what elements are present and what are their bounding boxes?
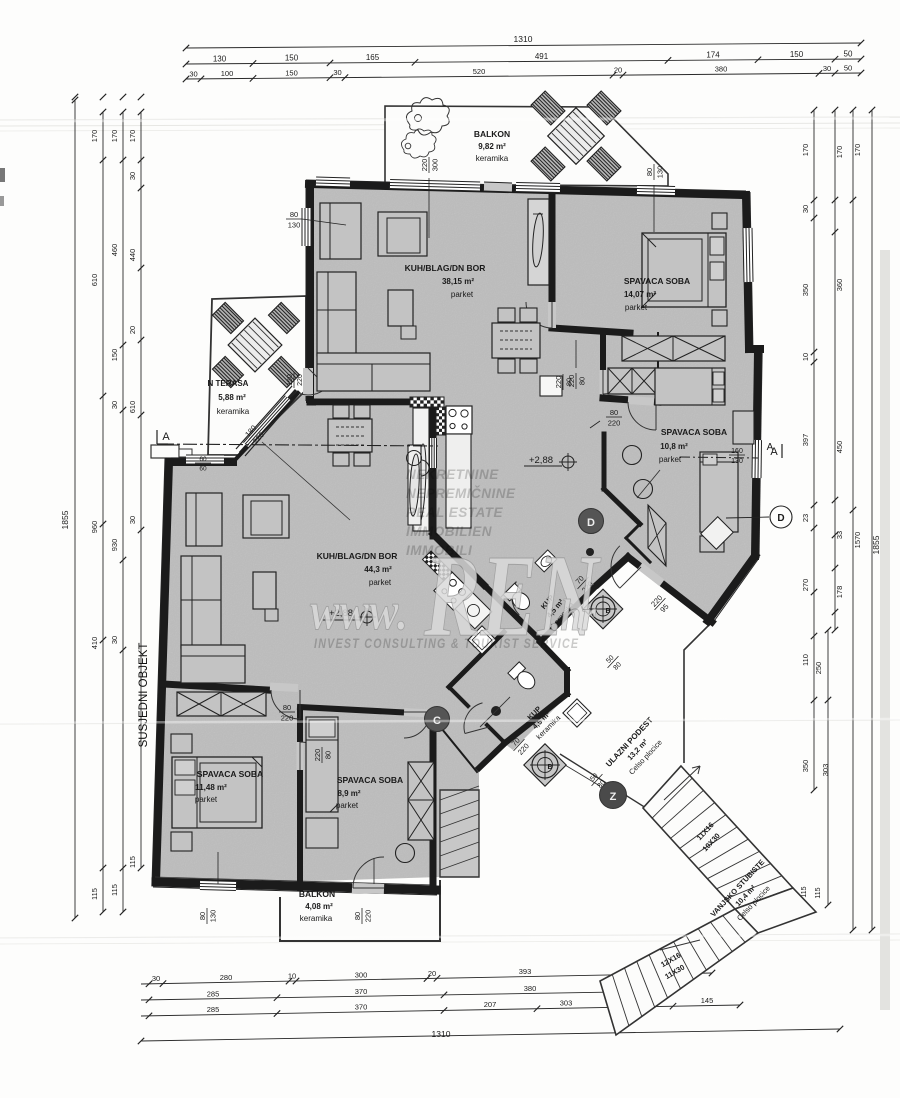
svg-text:+2,88: +2,88 [529,455,553,466]
svg-text:285: 285 [207,1005,220,1014]
svg-text:300: 300 [431,159,440,172]
svg-text:174: 174 [706,51,720,60]
svg-text:SUSJEDNI OBJEKT: SUSJEDNI OBJEKT [138,643,150,748]
svg-text:60: 60 [199,456,207,463]
svg-text:460: 460 [110,244,119,257]
svg-text:220: 220 [313,749,322,762]
svg-text:150: 150 [110,349,119,362]
svg-text:parket: parket [659,455,682,464]
svg-text:170: 170 [128,130,137,143]
svg-text:110: 110 [801,654,810,666]
svg-text:250: 250 [814,662,823,675]
svg-text:8,9 m²: 8,9 m² [337,789,360,798]
svg-text:303: 303 [821,764,830,777]
svg-text:REAL ESTATE: REAL ESTATE [406,505,504,520]
svg-text:KUH/BLAG/DN BOR: KUH/BLAG/DN BOR [405,263,486,273]
svg-text:SPAVACA SOBA: SPAVACA SOBA [624,276,690,286]
svg-text:keramika: keramika [217,407,250,416]
svg-text:20: 20 [614,66,622,75]
svg-text:220: 220 [364,910,373,923]
svg-text:KUH/BLAG/DN BOR: KUH/BLAG/DN BOR [317,551,398,561]
svg-text:130: 130 [656,166,665,179]
svg-text:150: 150 [285,69,298,78]
svg-text:5,88 m²: 5,88 m² [218,393,246,402]
svg-text:1855: 1855 [871,535,881,554]
svg-text:220: 220 [420,159,429,172]
svg-text:80: 80 [353,912,362,920]
svg-text:30: 30 [333,68,341,77]
svg-text:10,8 m²: 10,8 m² [660,442,688,451]
svg-text:440: 440 [128,249,137,262]
svg-text:1570: 1570 [853,532,862,549]
svg-text:115: 115 [90,888,99,900]
svg-text:80: 80 [565,378,574,386]
svg-text:165: 165 [366,53,380,62]
svg-text:115: 115 [815,887,822,898]
svg-text:350: 350 [801,284,810,297]
svg-text:20: 20 [128,326,137,334]
svg-text:115: 115 [801,886,808,897]
svg-text:380: 380 [715,65,728,74]
svg-text:150: 150 [790,50,804,59]
svg-text:BALKON: BALKON [299,889,335,899]
svg-text:30: 30 [823,64,831,73]
svg-text:10: 10 [801,353,810,361]
svg-text:178: 178 [835,586,844,599]
svg-text:60: 60 [199,466,207,473]
svg-text:11,48 m²: 11,48 m² [195,783,227,792]
svg-text:parket: parket [195,795,218,804]
svg-text:B: B [605,608,610,615]
svg-text:115: 115 [110,884,119,896]
svg-text:30: 30 [110,401,119,409]
svg-text:280: 280 [220,973,233,982]
svg-text:300: 300 [355,970,368,979]
svg-text:491: 491 [535,52,549,61]
svg-text:80: 80 [290,210,298,219]
svg-text:170: 170 [110,130,119,143]
svg-text:44,3 m²: 44,3 m² [364,565,392,574]
svg-text:parket: parket [336,801,359,810]
svg-text:30: 30 [189,69,197,78]
svg-text:285: 285 [207,989,220,998]
svg-text:150: 150 [287,374,294,386]
svg-text:303: 303 [560,999,573,1008]
svg-text:30: 30 [128,516,137,524]
svg-text:50: 50 [844,50,853,59]
svg-text:30: 30 [128,172,137,180]
svg-text:410: 410 [90,637,99,650]
svg-text:A: A [162,431,170,443]
svg-text:BALKON: BALKON [474,129,510,139]
svg-text:220: 220 [297,374,304,386]
svg-text:keramika: keramika [300,914,333,923]
svg-text:393: 393 [519,967,532,976]
svg-text:930: 930 [110,539,119,552]
svg-text:1310: 1310 [432,1029,451,1039]
svg-text:160: 160 [731,448,743,455]
svg-text:80: 80 [610,408,618,417]
svg-text:80: 80 [198,912,207,920]
svg-text:50: 50 [844,64,852,73]
svg-text:N TERASA: N TERASA [208,379,249,388]
svg-text:20: 20 [428,969,436,978]
svg-text:370: 370 [355,987,368,996]
svg-text:397: 397 [801,434,810,447]
svg-text:610: 610 [90,274,99,287]
svg-text:9,82 m²: 9,82 m² [478,142,506,151]
svg-text:220: 220 [554,376,563,389]
svg-text:NEKRETNINE: NEKRETNINE [406,467,499,482]
svg-text:Z: Z [610,791,617,803]
svg-text:130: 130 [213,54,227,63]
svg-text:1310: 1310 [514,34,533,44]
svg-text:450: 450 [835,441,844,454]
svg-text:23: 23 [801,514,810,522]
svg-text:30: 30 [152,974,160,983]
svg-text:115: 115 [128,856,137,868]
svg-text:4,08 m²: 4,08 m² [305,902,333,911]
svg-text:610: 610 [128,401,137,414]
svg-text:NEPREMIČNINE: NEPREMIČNINE [406,486,516,501]
svg-text:30: 30 [801,205,810,213]
svg-text:130: 130 [288,221,301,230]
svg-text:keramika: keramika [476,154,509,163]
svg-text:.hr: .hr [551,591,597,639]
svg-text:80: 80 [283,703,291,712]
svg-text:80: 80 [578,377,587,385]
svg-text:170: 170 [853,144,862,157]
svg-text:SPAVACA SOBA: SPAVACA SOBA [337,775,403,785]
svg-text:80: 80 [645,168,654,176]
svg-text:www.: www. [310,581,408,641]
svg-text:10: 10 [288,972,296,981]
svg-text:350: 350 [801,760,810,773]
svg-text:parket: parket [625,303,648,312]
svg-text:SPAVACA SOBA: SPAVACA SOBA [661,427,727,437]
svg-text:170: 170 [801,144,810,157]
svg-text:130: 130 [209,910,218,923]
svg-text:INVEST CONSULTING & TOURIST SE: INVEST CONSULTING & TOURIST SERVICE [314,636,579,652]
svg-text:1855: 1855 [60,510,70,529]
svg-text:170: 170 [90,130,99,143]
svg-text:207: 207 [484,1000,497,1009]
svg-text:145: 145 [701,996,714,1005]
svg-text:130: 130 [731,458,743,465]
svg-text:33: 33 [835,531,844,539]
svg-text:D: D [777,513,784,524]
svg-text:360: 360 [835,279,844,292]
svg-text:SPAVACA SOBA: SPAVACA SOBA [197,769,263,779]
svg-text:14,07 m²: 14,07 m² [624,290,656,299]
svg-text:80: 80 [324,751,333,759]
svg-text:150: 150 [285,54,299,63]
svg-text:170: 170 [835,146,844,159]
svg-text:parket: parket [451,290,474,299]
svg-text:220: 220 [608,419,621,428]
svg-text:A: A [767,442,774,453]
svg-text:520: 520 [473,67,486,76]
svg-text:370: 370 [355,1003,368,1012]
svg-text:100: 100 [221,69,234,78]
svg-text:30: 30 [110,636,119,644]
svg-text:38,15 m²: 38,15 m² [442,277,474,286]
svg-text:960: 960 [90,521,99,534]
svg-text:D: D [587,517,595,529]
svg-text:B: B [547,764,552,771]
svg-text:380: 380 [524,984,537,993]
svg-text:270: 270 [801,579,810,592]
